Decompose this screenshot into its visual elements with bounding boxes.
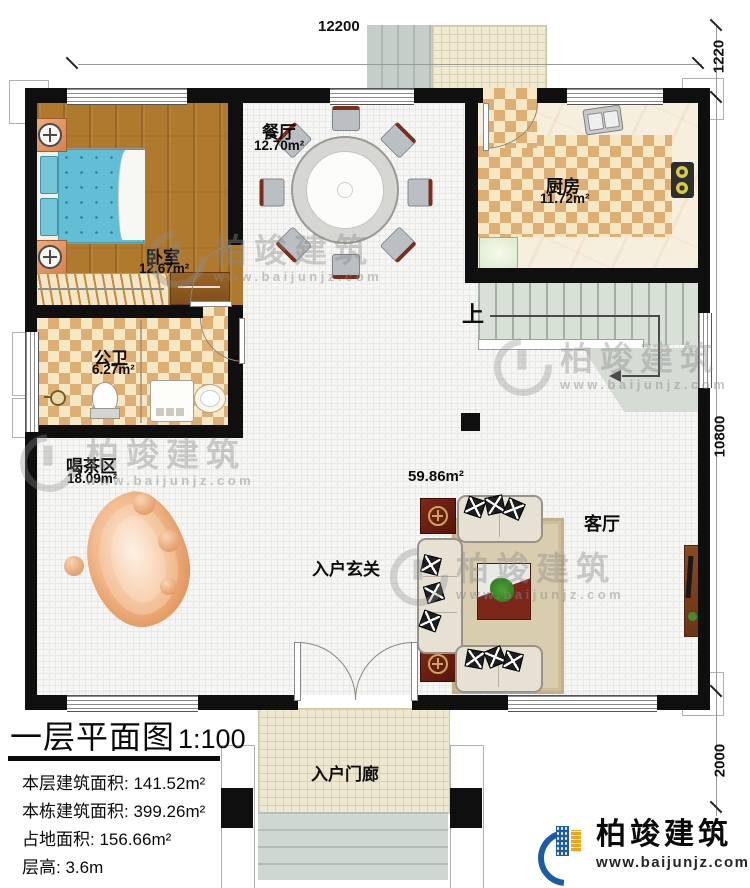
kitchen-area: 11.72m²: [540, 191, 590, 206]
entry-door-leaf: [411, 642, 418, 701]
info-row: 占地面积: 156.66m²: [22, 825, 171, 850]
sink-basin: [587, 112, 604, 131]
bed-pillow: [40, 156, 58, 194]
bathroom-area: 6.27m²: [92, 362, 135, 377]
nightstand: [33, 240, 67, 274]
brand-logo-icon: [538, 818, 594, 878]
back-entry-steps: [367, 25, 432, 88]
bed-blanket: [118, 150, 145, 240]
back-entry-pad: [432, 25, 547, 94]
wall: [25, 432, 37, 710]
kitchen-cabinet: [479, 237, 518, 269]
info-value: 399.26m²: [133, 802, 205, 821]
toilet-tank: [90, 408, 120, 419]
info-row: 本栋建筑面积: 399.26m²: [22, 797, 205, 822]
compass-medallion-icon: [428, 654, 448, 674]
wall: [698, 388, 710, 710]
dimension-top-label: 12200: [318, 18, 360, 35]
vanity-drawers: [156, 408, 186, 416]
kitchen-door-leaf: [483, 103, 489, 151]
wall: [25, 88, 37, 332]
pebble: [133, 493, 155, 515]
kitchen-sink: [582, 104, 623, 135]
window: [698, 313, 712, 388]
bathroom-door-leaf: [239, 318, 245, 364]
info-row: 层高: 3.6m: [22, 853, 103, 878]
stair-guide-line: [490, 315, 660, 317]
info-label: 本层建筑面积:: [22, 774, 129, 793]
wall: [25, 425, 243, 438]
info-value: 3.6m: [65, 858, 103, 877]
dining-chair: [332, 106, 360, 131]
plan-scale: 1:100: [178, 724, 246, 754]
bedroom-area: 12.67m²: [139, 261, 189, 276]
burner-icon: [676, 182, 688, 194]
porch-column: [221, 788, 253, 828]
wall: [228, 103, 243, 245]
window: [25, 332, 39, 432]
pebble: [160, 578, 177, 595]
burner-icon: [676, 166, 688, 178]
brand-url: www.baijunjz.com: [596, 854, 749, 871]
lamp-icon: [38, 245, 62, 269]
brand-name: 柏竣建筑: [596, 820, 749, 850]
bathroom-partition: [140, 320, 142, 423]
sofa-seam: [423, 576, 457, 577]
info-label: 层高:: [22, 858, 61, 877]
dimension-tick: [692, 57, 705, 70]
window: [67, 695, 198, 712]
living-area: 59.86m²: [408, 468, 464, 485]
wardrobe-rod: [38, 288, 164, 290]
dining-chair: [260, 179, 285, 207]
plant-icon: [688, 612, 697, 621]
porch-column: [450, 788, 482, 828]
info-label: 本栋建筑面积:: [22, 802, 129, 821]
drain-stem: [44, 396, 52, 398]
info-value: 156.66m²: [99, 830, 171, 849]
tea-area-area: 18.09m²: [67, 471, 117, 486]
stair-up-label: 上: [462, 297, 484, 329]
nightstand: [33, 118, 67, 152]
window: [67, 88, 187, 105]
title-underline: [8, 756, 220, 761]
stair-guide-line: [658, 315, 660, 377]
wall: [187, 88, 330, 103]
dimension-tick: [66, 57, 79, 70]
bedroom-door-leaf: [190, 301, 232, 307]
porch-label: 入户门廊: [311, 760, 379, 785]
foyer-label: 入户玄关: [312, 555, 380, 580]
pebble: [64, 556, 84, 576]
wall: [465, 268, 710, 283]
structural-column: [461, 413, 480, 431]
dining-table-center: [337, 182, 353, 198]
info-value: 141.52m²: [133, 774, 205, 793]
dimension-right-top-label: 1220: [711, 34, 728, 80]
dining-chair: [408, 179, 433, 207]
wardrobe: [35, 273, 169, 307]
bed-pillow: [40, 198, 58, 236]
floor-drain-icon: [50, 390, 66, 406]
lamp-icon: [38, 123, 62, 147]
dimension-right-mid-label: 10800: [712, 411, 729, 463]
stair-direction-arrow-icon: [609, 370, 621, 382]
logo-building-blue-icon: [556, 826, 569, 856]
dimension-right-bottom-label: 2000: [712, 739, 729, 783]
brand-block: 柏竣建筑 www.baijunjz.com: [596, 820, 749, 871]
window: [330, 88, 414, 105]
wall: [414, 88, 483, 103]
plan-title: 一层平面图1:100: [10, 712, 246, 758]
logo-building-orange-icon: [571, 830, 581, 852]
wall: [537, 88, 567, 103]
window: [508, 695, 657, 712]
stove: [671, 162, 694, 198]
sink-basin: [603, 110, 620, 129]
dining-area: 12.70m²: [254, 138, 304, 153]
plan-title-text: 一层平面图: [10, 719, 175, 755]
sink-basin: [200, 390, 220, 407]
porch-steps: [258, 812, 448, 880]
end-table: [420, 498, 456, 534]
stair-flight: [478, 283, 698, 345]
compass-medallion-icon: [428, 506, 448, 526]
wall: [465, 103, 478, 268]
info-row: 本层建筑面积: 141.52m²: [22, 769, 205, 794]
wall: [412, 695, 508, 710]
dimension-line-top: [78, 64, 702, 65]
pebble: [158, 530, 180, 552]
stair-guide-line: [622, 375, 660, 377]
living-label: 客厅: [584, 510, 620, 536]
dining-chair: [332, 254, 360, 279]
entry-door-leaf: [294, 642, 301, 701]
wall: [25, 305, 203, 318]
wall: [198, 695, 298, 710]
window: [567, 88, 663, 105]
info-label: 占地面积:: [22, 830, 95, 849]
plant-icon: [490, 578, 514, 602]
floor-plan-canvas: 入户门廊 卧室 12.67m² 公卫 6.27m² 厨房 11.72m²: [0, 0, 750, 888]
